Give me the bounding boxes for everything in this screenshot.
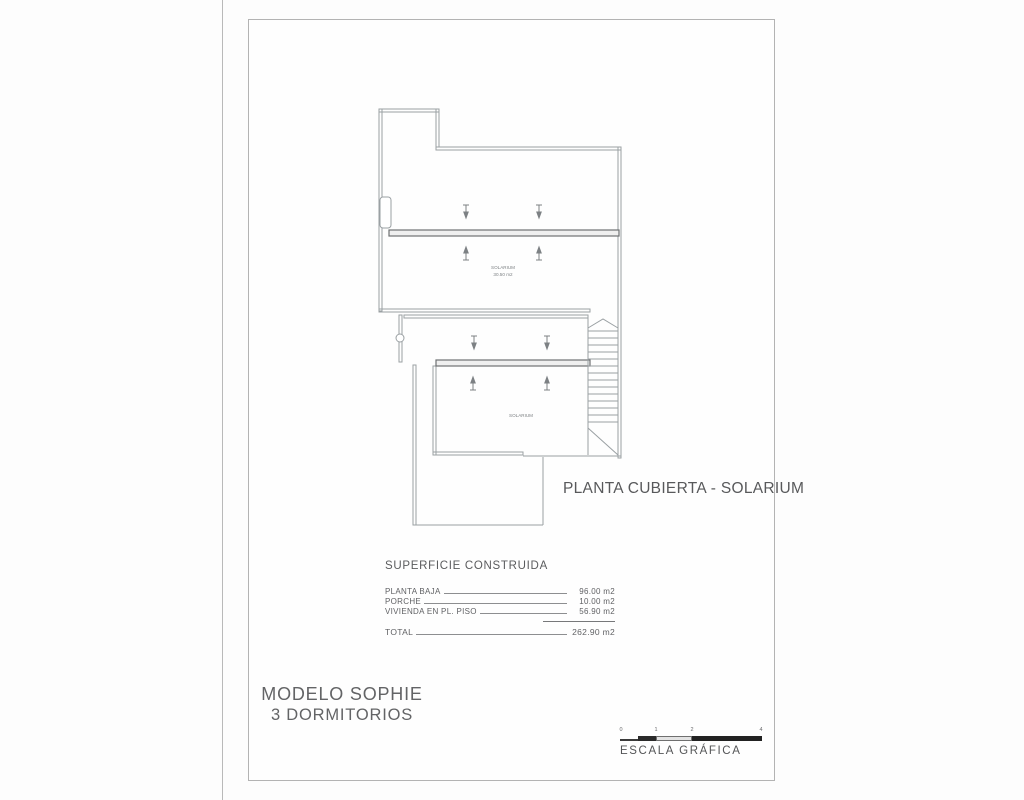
slope-arrow-down <box>471 336 477 349</box>
wall-top-left <box>379 109 439 112</box>
slope-arrow-up <box>470 377 476 390</box>
scale-tick: 1 <box>654 727 657 733</box>
thick-wall-lower <box>436 360 590 366</box>
scale-bar-segment <box>638 736 656 741</box>
stair-diagonal <box>588 428 618 455</box>
wall-top-right <box>436 147 621 150</box>
summary-row: VIVIENDA EN PL. PISO 56.90 m2 <box>385 606 615 616</box>
leader-line <box>480 613 567 614</box>
summary-total-row: TOTAL 262.90 m2 <box>385 626 615 637</box>
scale-bar-segment <box>692 736 762 741</box>
scale-tick: 2 <box>690 727 693 733</box>
slope-arrow-up <box>536 247 542 260</box>
drain-pipe-circle <box>396 334 404 342</box>
wall-upper-room-bottom <box>379 309 590 312</box>
leader-line <box>424 603 567 604</box>
row-value: 10.00 m2 <box>567 597 615 606</box>
total-value: 262.90 m2 <box>567 627 615 637</box>
model-subtitle: 3 DORMITORIOS <box>252 706 432 725</box>
scale-ticks: 0 1 2 4 <box>620 727 763 736</box>
row-value: 96.00 m2 <box>567 587 615 596</box>
thick-walls <box>389 230 619 366</box>
thick-wall-upper <box>389 230 619 236</box>
leader-line <box>444 593 567 594</box>
plan-caption: PLANTA CUBIERTA - SOLARIUM <box>563 480 778 498</box>
terrace-parapet <box>404 315 588 318</box>
graphic-scale: 0 1 2 4 ESCALA GRÁFICA <box>620 727 763 757</box>
left-wall-niche <box>380 197 391 228</box>
room-labels: SOLARIUM 30.50 m2 SOLARIUM <box>491 265 533 418</box>
scale-label: ESCALA GRÁFICA <box>620 745 763 757</box>
upper-room-area-label: 30.50 m2 <box>493 272 513 277</box>
porch-left-wall <box>413 365 416 525</box>
scale-tick: 4 <box>759 727 762 733</box>
scale-bar <box>620 736 762 741</box>
summary-row: PLANTA BAJA 96.00 m2 <box>385 586 615 596</box>
built-area-summary: SUPERFICIE CONSTRUIDA PLANTA BAJA 96.00 … <box>385 560 615 637</box>
row-value: 56.90 m2 <box>567 607 615 616</box>
lower-room-label: SOLARIUM <box>509 413 533 418</box>
model-title-block: MODELO SOPHIE 3 DORMITORIOS <box>252 684 432 725</box>
slope-arrow-down <box>536 205 542 218</box>
row-label: VIVIENDA EN PL. PISO <box>385 607 480 616</box>
wall-step-vertical <box>436 109 439 147</box>
lower-room-bottom-wall <box>433 452 523 455</box>
row-label: PLANTA BAJA <box>385 587 444 596</box>
wall-right <box>618 147 621 458</box>
scale-bar-segment <box>620 739 638 741</box>
lower-room-left-wall <box>433 366 436 455</box>
total-separator-line <box>543 621 615 622</box>
total-label: TOTAL <box>385 627 416 637</box>
floor-plan-drawing: SOLARIUM 30.50 m2 SOLARIUM <box>0 0 1024 800</box>
model-name: MODELO SOPHIE <box>252 684 432 705</box>
scale-bar-segment <box>656 736 692 741</box>
leader-line <box>416 634 567 635</box>
row-label: PORCHE <box>385 597 424 606</box>
outer-walls <box>379 109 621 525</box>
summary-title: SUPERFICIE CONSTRUIDA <box>385 560 615 572</box>
staircase <box>588 316 618 455</box>
stair-top-chevron <box>588 319 618 328</box>
summary-row: PORCHE 10.00 m2 <box>385 596 615 606</box>
slope-arrow-down <box>463 205 469 218</box>
upper-room-label: SOLARIUM <box>491 265 515 270</box>
scale-tick: 0 <box>619 727 622 733</box>
slope-arrow-up <box>463 247 469 260</box>
slope-arrows-down <box>463 205 550 349</box>
slope-arrow-up <box>544 377 550 390</box>
slope-arrow-down <box>544 336 550 349</box>
